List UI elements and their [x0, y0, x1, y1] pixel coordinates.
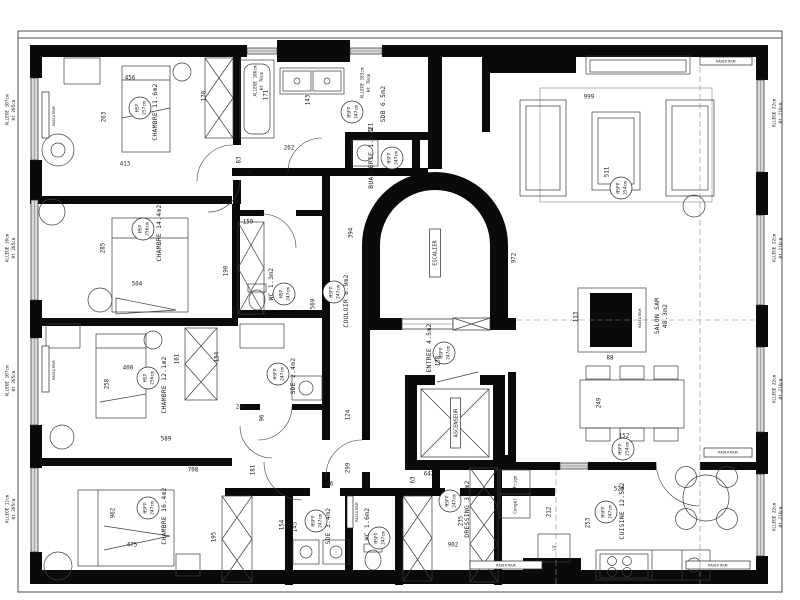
dim-178b: 178: [241, 170, 252, 176]
svg-text:247cm: 247cm: [607, 505, 613, 519]
bedroom2-furniture: [39, 199, 264, 314]
entrance-door: [402, 318, 490, 330]
dim-394: 394: [349, 227, 355, 238]
svg-text:256cm: 256cm: [149, 371, 155, 385]
svg-text:HSFP: HSFP: [311, 515, 317, 526]
room-label-salon: SALON SAM 48.3m2: [654, 298, 669, 335]
svg-text:247cm: 247cm: [279, 367, 285, 381]
dim-113: 113: [574, 311, 580, 322]
dim-456: 456: [125, 76, 136, 82]
hsp-circle-couloir: HSFP247cm: [323, 281, 345, 303]
dim-143: 143: [306, 94, 312, 105]
svg-text:Ht 216cm: Ht 216cm: [778, 378, 784, 399]
svg-text:Ht 205cm: Ht 205cm: [11, 237, 17, 258]
dim-154: 154: [215, 351, 221, 362]
svg-text:HSFP: HSFP: [347, 106, 353, 117]
svg-text:HSFP: HSFP: [616, 182, 622, 193]
svg-text:Ht 205cm: Ht 205cm: [11, 99, 17, 120]
svg-text:HSFP: HSFP: [374, 532, 380, 543]
dim-642: 642: [424, 472, 434, 478]
svg-text:HSFP: HSFP: [601, 506, 607, 517]
dim-154k: 154: [280, 519, 286, 530]
svg-text:Ht 216cm: Ht 216cm: [778, 506, 784, 527]
svg-text:Ht 70cm: Ht 70cm: [259, 72, 265, 91]
dim-235: 235: [459, 515, 465, 526]
svg-text:HSFP: HSFP: [445, 495, 451, 506]
svg-text:HSFP: HSFP: [618, 443, 624, 454]
allege-left-1: ALLEGE 107cmHt 205cm: [5, 94, 18, 125]
svg-text:247cm: 247cm: [335, 285, 341, 299]
dim-159: 159: [243, 220, 254, 226]
svg-text:HSFP: HSFP: [273, 368, 279, 379]
dim-446: 446: [323, 482, 334, 488]
hsp-circle-sdb: HSFP247cm: [341, 101, 363, 123]
dim-190: 190: [224, 265, 230, 276]
allege-right-4: ALLEGE 22cmHt 216cm: [772, 502, 785, 531]
hsp-circle-salon-1: HSFP254cm: [610, 177, 632, 199]
room-label-couloir: COULOIR 8.9m2: [343, 274, 350, 327]
svg-text:HSP: HSP: [135, 104, 141, 113]
svg-text:247cm: 247cm: [149, 501, 155, 515]
room-label-sdb: SDB 6.5m2: [380, 86, 387, 123]
svg-text:HSFP: HSFP: [143, 502, 149, 513]
hsp-circle-wc1: HSP247cm: [273, 283, 295, 305]
sde2-fixtures: [293, 540, 349, 564]
dim-504: 504: [132, 282, 143, 288]
escalier-label: ESCALIER: [430, 229, 441, 277]
svg-text:247cm: 247cm: [353, 105, 359, 119]
hsp-circle-sde1: HSFP247cm: [267, 363, 289, 385]
dim-124: 124: [346, 409, 352, 420]
hsp-circle-sde2: HSFP247cm: [305, 510, 327, 532]
allege-right-1: ALLEGE 22cmHt 216cm: [772, 98, 785, 127]
dim-902: 902: [448, 543, 458, 549]
radiateur-label: RADIATEUR: [496, 564, 516, 568]
svg-text:247cm: 247cm: [285, 287, 291, 301]
hsp-circle-wc2: HSFP247cm: [368, 527, 390, 549]
hsp-circle-buanderie: HSFP247cm: [381, 147, 403, 169]
dim-152: 152: [619, 434, 629, 440]
allege-left-2: ALLEGE 10cmHt 205cm: [5, 233, 18, 262]
dim-475: 475: [127, 543, 138, 549]
dim-299: 299: [346, 462, 352, 473]
room-label-chambre3: CHAMBRE 12.1m2: [161, 356, 168, 413]
svg-text:247cm: 247cm: [393, 151, 399, 165]
floor-plan: CHAMBRE 11.6m2 CHAMBRE 14.4m2 CHAMBRE 12…: [0, 0, 800, 600]
radiateur-label: RADIATEUR: [718, 451, 738, 455]
radiateur-label: RADIATEUR: [638, 307, 642, 327]
dim-178: 178: [202, 90, 208, 101]
bedroom3-furniture: [46, 324, 217, 449]
svg-text:256cm: 256cm: [144, 222, 150, 236]
dim-253: 253: [586, 517, 592, 528]
hsp-circle-chambre3: HSP256cm: [137, 367, 159, 389]
radiateur-label: RADIATEUR: [52, 359, 56, 379]
hsp-circle-cuisine: HSFP247cm: [595, 501, 617, 523]
svg-text:HSFP: HSFP: [387, 152, 393, 163]
allege-right-2: ALLEGE 22cmHt 216cm: [772, 233, 785, 262]
sde1-fixtures: [240, 324, 322, 400]
svg-text:ALLEGE 22cm: ALLEGE 22cm: [772, 374, 778, 403]
salon-furniture: [520, 56, 714, 441]
axis-lines: [516, 58, 754, 584]
svg-text:247cm: 247cm: [451, 494, 457, 508]
dim-413: 413: [120, 162, 131, 168]
radiateur-label: RADIATEUR: [355, 501, 359, 521]
room-label-entree: ENTREE 4.5m2: [426, 323, 433, 372]
dim-285: 285: [101, 242, 107, 253]
svg-text:247cm: 247cm: [317, 514, 323, 528]
hsp-circle-chambre1: HSP257cm: [129, 97, 151, 119]
dim-138: 138: [436, 355, 442, 366]
svg-text:ALLEGE 183cm: ALLEGE 183cm: [360, 67, 366, 98]
dim-88: 88: [607, 356, 614, 362]
hsp-circle-salon-2: HSFP254cm: [612, 438, 634, 460]
hsp-circle-chambre4: HSFP247cm: [137, 497, 159, 519]
svg-text:247cm: 247cm: [380, 531, 386, 545]
dim-249: 249: [236, 405, 247, 411]
allege-right-3: ALLEGE 22cmHt 216cm: [772, 374, 785, 403]
svg-text:ALLEGE 107cm: ALLEGE 107cm: [5, 94, 11, 125]
svg-text:ALLEGE 22cm: ALLEGE 22cm: [772, 98, 778, 127]
dim-972: 972: [512, 253, 518, 263]
dim-962: 962: [111, 508, 117, 518]
dim-161: 161: [175, 353, 181, 364]
ascenseur-label: ASCENSEUR: [451, 398, 461, 448]
room-label-chambre4: CHAMBRE 16.4m2: [161, 487, 168, 544]
dim-569: 569: [311, 298, 317, 309]
dim-523: 523: [614, 487, 625, 493]
svg-text:HSP: HSP: [143, 374, 149, 383]
dim-263: 263: [102, 111, 108, 122]
wc1-fixtures: [248, 284, 266, 310]
room-label-chambre1: CHAMBRE 11.6m2: [152, 83, 159, 140]
svg-text:ALLEGE 10cm: ALLEGE 10cm: [5, 233, 11, 262]
dim-145: 145: [293, 521, 299, 532]
allege-left-4: ALLEGE 11cmHt 205cm: [5, 494, 18, 523]
dim-262: 262: [284, 146, 294, 152]
dim-249s: 249: [597, 397, 603, 408]
svg-text:HSP: HSP: [138, 225, 144, 234]
radiateur-label: RADIATEUR: [52, 105, 56, 125]
dim-400: 400: [123, 366, 134, 372]
svg-text:247cm: 247cm: [445, 346, 451, 360]
hsp-circle-dressing: HSFP247cm: [439, 490, 461, 512]
congel-label: Congel: [513, 498, 519, 514]
dim-96: 96: [260, 414, 266, 421]
lv-label: LV: [552, 545, 558, 551]
svg-text:ESCALIER: ESCALIER: [433, 239, 439, 265]
svg-text:ALLEGE 11cm: ALLEGE 11cm: [5, 494, 11, 523]
svg-text:ASCENSEUR: ASCENSEUR: [454, 408, 460, 438]
closets: [222, 468, 498, 582]
dim-63: 63: [411, 476, 417, 483]
room-label-buanderie: BUANDERIE 1.8m2: [368, 127, 375, 188]
dim-171: 171: [264, 89, 270, 100]
svg-text:Ht 205cm: Ht 205cm: [11, 370, 17, 391]
radiateur-label: RADIATEUR: [708, 564, 728, 568]
svg-text:257cm: 257cm: [141, 101, 147, 115]
dim-708: 708: [188, 468, 199, 474]
svg-text:ALLEGE 186cm: ALLEGE 186cm: [253, 65, 259, 96]
dim-258: 258: [105, 378, 111, 389]
radiateur-label: RADIATEUR: [716, 60, 736, 64]
dim-83: 83: [237, 156, 243, 163]
svg-text:Ht 216cm: Ht 216cm: [778, 102, 784, 123]
hsp-circle-chambre2: HSP256cm: [132, 218, 154, 240]
floor-plan-sheet: CHAMBRE 11.6m2 CHAMBRE 14.4m2 CHAMBRE 12…: [0, 0, 800, 600]
room-label-chambre2: CHAMBRE 14.4m2: [156, 204, 163, 261]
svg-text:HSFP: HSFP: [329, 286, 335, 297]
svg-text:HSP: HSP: [279, 290, 285, 299]
dim-212: 212: [547, 507, 553, 517]
svg-text:Ht 216cm: Ht 216cm: [778, 237, 784, 258]
svg-text:48.3m2: 48.3m2: [662, 304, 669, 329]
dim-589: 589: [161, 437, 172, 443]
frigo-label: Frigo: [513, 475, 519, 488]
svg-text:Ht 205cm: Ht 205cm: [11, 498, 17, 519]
svg-text:254cm: 254cm: [624, 442, 630, 456]
svg-text:ALLEGE 107cm: ALLEGE 107cm: [5, 365, 11, 396]
svg-text:SALON SAM: SALON SAM: [654, 298, 661, 335]
svg-text:Ht 70cm: Ht 70cm: [366, 74, 372, 93]
dim-321: 321: [369, 122, 375, 133]
svg-text:ALLEGE 22cm: ALLEGE 22cm: [772, 502, 778, 531]
svg-text:254cm: 254cm: [622, 181, 628, 195]
allege-left-3: ALLEGE 107cmHt 205cm: [5, 365, 18, 396]
dim-511: 511: [605, 166, 611, 177]
dim-181: 181: [251, 464, 257, 475]
bedroom4-furniture: [44, 490, 200, 580]
room-label-sde1: SDE 2.4m2: [290, 358, 297, 395]
allege-top-2: ALLEGE 183cmHt 70cm: [360, 67, 373, 98]
dim-999: 999: [584, 95, 595, 101]
dim-195: 195: [212, 531, 218, 542]
svg-text:ALLEGE 22cm: ALLEGE 22cm: [772, 233, 778, 262]
room-label-dressing: DRESSING 3.9m2: [464, 480, 471, 537]
